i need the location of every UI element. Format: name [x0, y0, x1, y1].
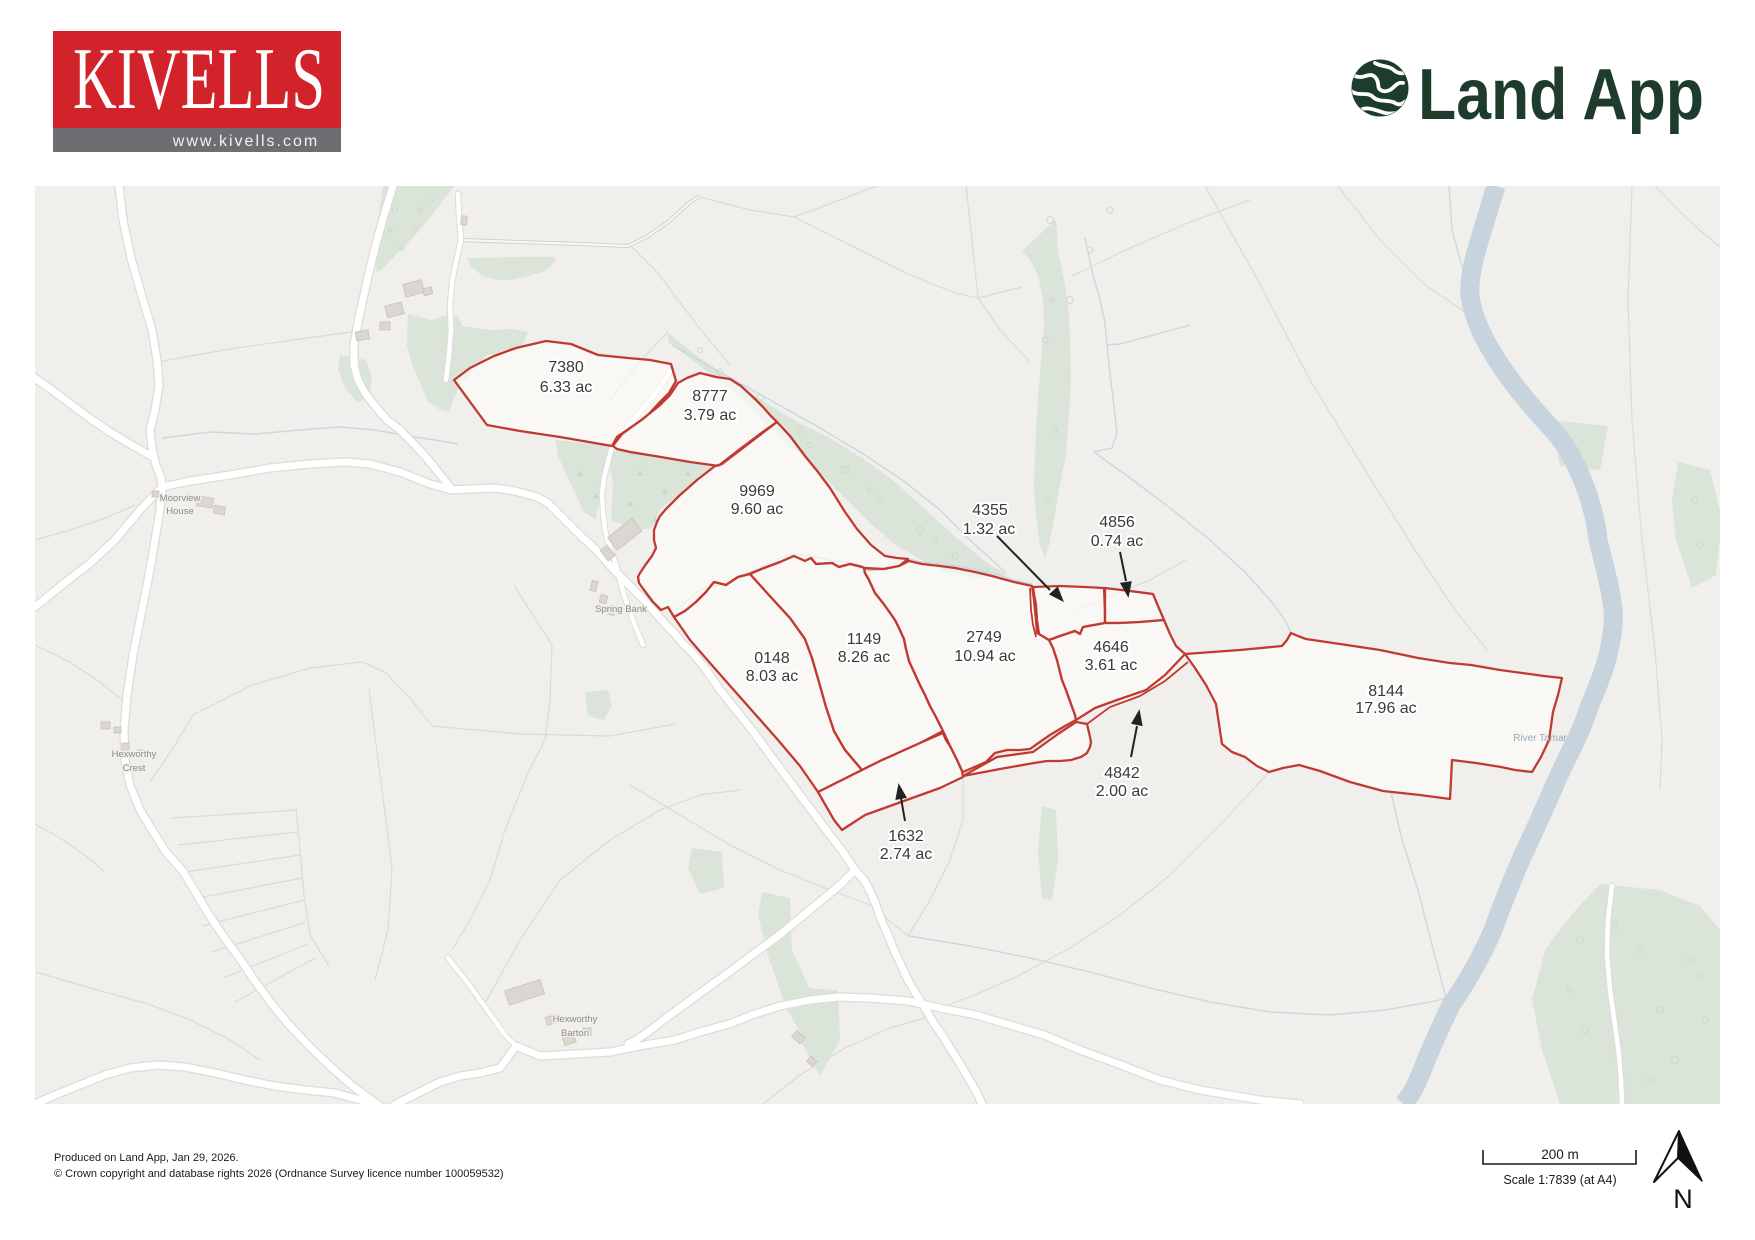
svg-text:8144: 8144 — [1368, 683, 1404, 700]
svg-text:9.60 ac: 9.60 ac — [731, 501, 783, 518]
svg-text:8777: 8777 — [692, 388, 728, 405]
svg-text:Hexworthy: Hexworthy — [112, 749, 157, 760]
svg-text:Barton: Barton — [561, 1028, 589, 1039]
svg-text:0148: 0148 — [754, 650, 790, 667]
svg-text:2.00 ac: 2.00 ac — [1096, 783, 1148, 800]
svg-text:6.33 ac: 6.33 ac — [540, 379, 592, 396]
svg-text:Scale 1:7839 (at A4): Scale 1:7839 (at A4) — [1503, 1173, 1616, 1187]
svg-text:www.kivells.com: www.kivells.com — [172, 133, 319, 150]
svg-text:KIVELLS: KIVELLS — [73, 31, 325, 128]
svg-text:4842: 4842 — [1104, 765, 1140, 782]
svg-text:3.61 ac: 3.61 ac — [1085, 657, 1137, 674]
svg-text:10.94 ac: 10.94 ac — [954, 648, 1015, 665]
svg-text:N: N — [1673, 1184, 1693, 1214]
svg-text:Hexworthy: Hexworthy — [553, 1014, 598, 1025]
svg-text:8.03 ac: 8.03 ac — [746, 668, 798, 685]
svg-text:River Tamar: River Tamar — [1513, 733, 1567, 744]
svg-text:7380: 7380 — [548, 359, 584, 376]
svg-text:Crest: Crest — [123, 763, 146, 774]
svg-text:Land App: Land App — [1418, 55, 1704, 135]
svg-text:House: House — [166, 506, 193, 517]
svg-text:4355: 4355 — [972, 502, 1008, 519]
svg-text:3.79 ac: 3.79 ac — [684, 407, 736, 424]
svg-text:200 m: 200 m — [1541, 1147, 1579, 1162]
svg-text:1149: 1149 — [847, 631, 882, 648]
svg-text:1632: 1632 — [888, 828, 924, 845]
svg-text:4856: 4856 — [1099, 514, 1135, 531]
svg-text:Moorview: Moorview — [160, 493, 201, 504]
svg-text:1.32 ac: 1.32 ac — [963, 521, 1015, 538]
svg-text:Spring Bank: Spring Bank — [595, 604, 647, 615]
svg-text:2749: 2749 — [966, 629, 1002, 646]
svg-text:9969: 9969 — [739, 483, 775, 500]
svg-text:4646: 4646 — [1093, 639, 1129, 656]
svg-text:0.74 ac: 0.74 ac — [1091, 533, 1143, 550]
svg-text:8.26 ac: 8.26 ac — [838, 649, 890, 666]
svg-text:17.96 ac: 17.96 ac — [1355, 700, 1416, 717]
svg-text:2.74 ac: 2.74 ac — [880, 846, 932, 863]
